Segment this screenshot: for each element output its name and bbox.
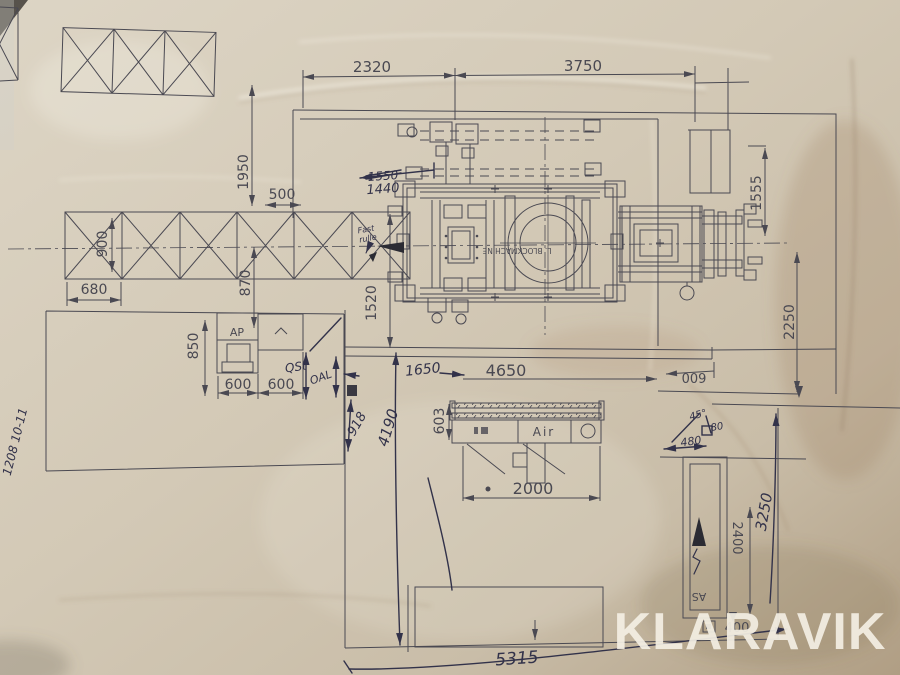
dim-900: 900 bbox=[95, 231, 111, 258]
label-machine-name: L. BLOCKMACHINE bbox=[482, 246, 551, 255]
blueprint-photo: 2320 3750 1950 500 900 680 870 1520 1555… bbox=[0, 0, 900, 675]
dim-1520: 1520 bbox=[364, 285, 380, 321]
hand-80: 80 bbox=[710, 421, 724, 434]
dim-850: 850 bbox=[186, 333, 202, 360]
dim-2320: 2320 bbox=[353, 58, 391, 76]
dim-2400: 2400 bbox=[729, 521, 744, 554]
dim-500: 500 bbox=[269, 187, 296, 203]
label-as: AS bbox=[692, 590, 707, 603]
dim-603: 603 bbox=[432, 408, 448, 435]
dim-1950: 1950 bbox=[236, 154, 252, 190]
dim-2250: 2250 bbox=[782, 304, 798, 340]
dim-870: 870 bbox=[238, 270, 254, 297]
dim-600-right: 600 bbox=[268, 377, 295, 393]
dim-2000: 2000 bbox=[513, 479, 554, 498]
drawing-canvas: 2320 3750 1950 500 900 680 870 1520 1555… bbox=[0, 0, 900, 675]
dim-3750: 3750 bbox=[564, 57, 602, 75]
hand-5315: 5315 bbox=[495, 648, 540, 671]
dim-4650: 4650 bbox=[486, 361, 527, 380]
dim-600-left: 600 bbox=[225, 377, 252, 393]
label-ap: AP bbox=[230, 326, 245, 339]
dim-1555: 1555 bbox=[749, 175, 765, 211]
label-air: Air bbox=[533, 425, 555, 439]
dim-680: 680 bbox=[81, 282, 108, 298]
watermark-klaravik: KLARAVIK bbox=[614, 603, 887, 661]
paper-edge-sliver bbox=[0, 0, 14, 150]
hand-1440: 1440 bbox=[366, 181, 400, 198]
dim-600-rotated: 600 bbox=[682, 369, 707, 384]
